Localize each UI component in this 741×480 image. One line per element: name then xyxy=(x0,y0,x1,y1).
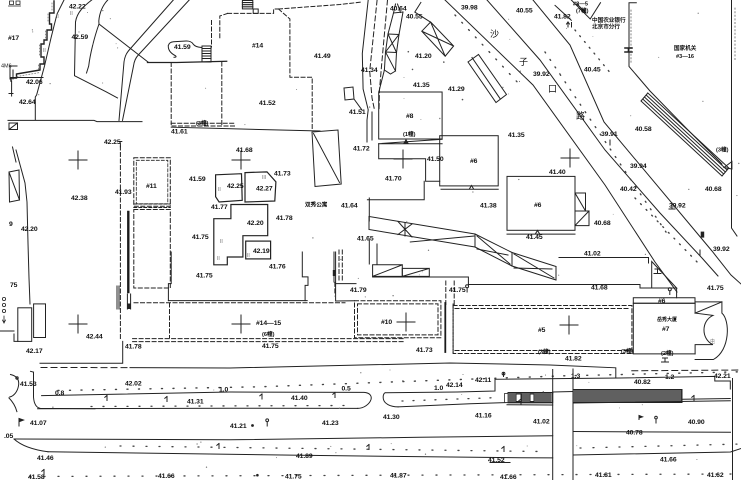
svg-text:41.77: 41.77 xyxy=(211,204,228,211)
svg-text:40.90: 40.90 xyxy=(688,419,705,426)
svg-text:40.55: 40.55 xyxy=(406,14,423,21)
svg-text:42.17: 42.17 xyxy=(26,348,43,355)
svg-text:#8: #8 xyxy=(406,113,414,120)
svg-text:42.19: 42.19 xyxy=(253,248,270,255)
svg-text:41.75: 41.75 xyxy=(285,474,302,480)
svg-text:41.53: 41.53 xyxy=(20,381,37,388)
svg-text:41.75: 41.75 xyxy=(707,285,724,292)
svg-text:沙: 沙 xyxy=(490,29,499,39)
svg-text:屯: 屯 xyxy=(710,338,715,345)
svg-text:42.38: 42.38 xyxy=(71,195,88,202)
svg-text:41.78: 41.78 xyxy=(276,215,293,222)
svg-text:III: III xyxy=(262,175,266,181)
svg-text:41.66: 41.66 xyxy=(660,457,677,464)
svg-text:41.75: 41.75 xyxy=(192,234,209,241)
svg-text:41.20: 41.20 xyxy=(415,53,432,60)
svg-text:41.82: 41.82 xyxy=(554,14,571,21)
svg-text:#11: #11 xyxy=(146,183,157,190)
svg-text:42.20: 42.20 xyxy=(247,220,264,227)
svg-text:0.8: 0.8 xyxy=(55,390,64,397)
svg-text:41.68: 41.68 xyxy=(591,285,608,292)
svg-text:II: II xyxy=(56,14,59,20)
svg-text:42.27: 42.27 xyxy=(256,186,273,193)
svg-text:子: 子 xyxy=(519,57,528,67)
svg-text:41.75: 41.75 xyxy=(449,287,466,294)
svg-text:41.81: 41.81 xyxy=(595,472,612,479)
svg-text:40.82: 40.82 xyxy=(634,379,651,386)
svg-text:41.76: 41.76 xyxy=(269,264,286,271)
svg-text:41.29: 41.29 xyxy=(448,86,465,93)
svg-text:42.22: 42.22 xyxy=(69,4,86,11)
svg-text:41.23: 41.23 xyxy=(322,420,339,427)
svg-text:II: II xyxy=(220,239,223,245)
svg-text:(3幢): (3幢) xyxy=(538,348,551,356)
svg-text:口: 口 xyxy=(548,84,557,94)
svg-text:II: II xyxy=(247,253,250,259)
svg-text:41.34: 41.34 xyxy=(361,67,378,74)
svg-text:41.70: 41.70 xyxy=(385,176,402,183)
svg-text:41.82: 41.82 xyxy=(565,356,582,363)
svg-text:40.55: 40.55 xyxy=(516,8,533,15)
svg-text:41.52: 41.52 xyxy=(259,100,276,107)
svg-text:41.30: 41.30 xyxy=(383,414,400,421)
svg-text:42.21: 42.21 xyxy=(714,373,731,380)
svg-text:42.14: 42.14 xyxy=(446,382,463,389)
svg-text:(3幢): (3幢) xyxy=(716,146,729,154)
svg-text:(6幢): (6幢) xyxy=(262,330,275,338)
svg-text:#6: #6 xyxy=(534,202,542,209)
svg-text:40.64: 40.64 xyxy=(390,6,407,13)
svg-text:1.3: 1.3 xyxy=(571,373,580,380)
svg-text:9: 9 xyxy=(9,221,13,228)
svg-text:41.59: 41.59 xyxy=(189,176,206,183)
svg-text:41.78: 41.78 xyxy=(125,344,142,351)
svg-text:41.72: 41.72 xyxy=(353,146,370,153)
svg-text:39.91: 39.91 xyxy=(601,131,618,138)
svg-text:(3幢): (3幢) xyxy=(196,119,209,127)
svg-text:#10: #10 xyxy=(381,319,392,326)
svg-text:(1幢): (1幢) xyxy=(403,130,416,138)
svg-text:42.06: 42.06 xyxy=(26,79,43,86)
svg-text:41.38: 41.38 xyxy=(480,203,497,210)
svg-text:41.45: 41.45 xyxy=(526,234,543,241)
svg-text:41.75: 41.75 xyxy=(196,273,213,280)
svg-text:#5: #5 xyxy=(538,327,546,334)
svg-text:39.92: 39.92 xyxy=(669,203,686,210)
svg-text:42.25: 42.25 xyxy=(104,139,121,146)
svg-text:41.73: 41.73 xyxy=(274,171,291,178)
svg-text:41.64: 41.64 xyxy=(341,203,358,210)
svg-text:41.31: 41.31 xyxy=(187,399,204,406)
svg-text:39.92: 39.92 xyxy=(713,246,730,253)
svg-text:41.66: 41.66 xyxy=(500,474,517,480)
svg-text:国家机关: 国家机关 xyxy=(674,44,697,52)
svg-text:39.94: 39.94 xyxy=(630,163,647,170)
svg-text:40.58: 40.58 xyxy=(635,126,652,133)
svg-text:41.79: 41.79 xyxy=(350,287,367,294)
svg-text:40.42: 40.42 xyxy=(620,186,637,193)
svg-text:40.68: 40.68 xyxy=(705,186,722,193)
svg-text:#17: #17 xyxy=(8,35,19,42)
svg-text:41.51: 41.51 xyxy=(349,109,366,116)
svg-text:0.5: 0.5 xyxy=(342,386,351,393)
svg-text:40.45: 40.45 xyxy=(584,67,601,74)
svg-text:1.0: 1.0 xyxy=(434,385,443,392)
svg-text:(7幢): (7幢) xyxy=(576,7,589,15)
svg-text:4M6: 4M6 xyxy=(1,64,12,70)
svg-text:II: II xyxy=(217,256,220,262)
svg-text:41.59: 41.59 xyxy=(174,44,191,51)
svg-text:40.78: 40.78 xyxy=(626,430,643,437)
svg-text:41.87: 41.87 xyxy=(390,473,407,480)
svg-text:(3幢): (3幢) xyxy=(621,347,634,355)
svg-text:#6: #6 xyxy=(470,158,478,165)
svg-text:#7: #7 xyxy=(662,326,670,333)
svg-text:#3—16: #3—16 xyxy=(676,54,694,60)
svg-text:II: II xyxy=(218,187,221,193)
svg-text:41.89: 41.89 xyxy=(296,453,313,460)
svg-text:双秀公寓: 双秀公寓 xyxy=(305,201,328,209)
svg-text:41.58: 41.58 xyxy=(28,474,45,480)
svg-text:(2幢): (2幢) xyxy=(661,349,674,357)
svg-text:42.20: 42.20 xyxy=(21,226,38,233)
svg-text:41.73: 41.73 xyxy=(416,347,433,354)
svg-text:#6: #6 xyxy=(658,298,666,305)
svg-text:41.62: 41.62 xyxy=(707,472,724,479)
svg-text:41.07: 41.07 xyxy=(30,420,47,427)
svg-text:#8—5: #8—5 xyxy=(573,2,588,8)
svg-text:41.61: 41.61 xyxy=(171,129,188,136)
svg-text:41.75: 41.75 xyxy=(262,343,279,350)
svg-text:42.59: 42.59 xyxy=(72,34,89,41)
svg-text:路: 路 xyxy=(576,110,585,121)
svg-text:#14—15: #14—15 xyxy=(256,320,281,327)
svg-text:1.2: 1.2 xyxy=(665,374,674,381)
svg-text:41.46: 41.46 xyxy=(37,455,54,462)
svg-text:41.65: 41.65 xyxy=(357,236,374,243)
svg-text:39.98: 39.98 xyxy=(461,5,478,12)
svg-text:42.02: 42.02 xyxy=(125,381,142,388)
svg-text:42.11: 42.11 xyxy=(475,377,491,384)
svg-text:41.66: 41.66 xyxy=(158,473,175,480)
svg-text:II: II xyxy=(70,11,73,17)
svg-text:41.68: 41.68 xyxy=(236,147,253,154)
svg-text:41.52: 41.52 xyxy=(488,457,505,464)
svg-text:42.25: 42.25 xyxy=(227,183,244,190)
svg-text:1.0: 1.0 xyxy=(219,387,228,394)
svg-text:39.92: 39.92 xyxy=(533,71,550,78)
svg-text:中国农业银行: 中国农业银行 xyxy=(592,16,626,24)
svg-text:北京市分行: 北京市分行 xyxy=(592,23,620,31)
svg-text:75: 75 xyxy=(10,282,18,289)
svg-text:岳秀大厦: 岳秀大厦 xyxy=(657,316,678,323)
svg-text:41.49: 41.49 xyxy=(314,53,331,60)
svg-text:41.21: 41.21 xyxy=(230,423,247,430)
svg-text:41.93: 41.93 xyxy=(115,189,132,196)
svg-text:.05: .05 xyxy=(4,433,13,440)
svg-text:41.40: 41.40 xyxy=(549,169,566,176)
svg-text:41.02: 41.02 xyxy=(584,251,601,258)
svg-text:41.35: 41.35 xyxy=(508,132,525,139)
svg-text:42.44: 42.44 xyxy=(86,334,103,341)
svg-text:41.16: 41.16 xyxy=(475,413,492,420)
svg-text:42.64: 42.64 xyxy=(19,99,36,106)
svg-text:40.68: 40.68 xyxy=(594,220,611,227)
svg-text:41.02: 41.02 xyxy=(533,419,550,426)
svg-text:#14: #14 xyxy=(252,43,263,50)
svg-text:41.40: 41.40 xyxy=(291,395,308,402)
svg-text:41.50: 41.50 xyxy=(427,156,444,163)
svg-text:41.35: 41.35 xyxy=(413,82,430,89)
svg-text:II: II xyxy=(43,48,46,54)
